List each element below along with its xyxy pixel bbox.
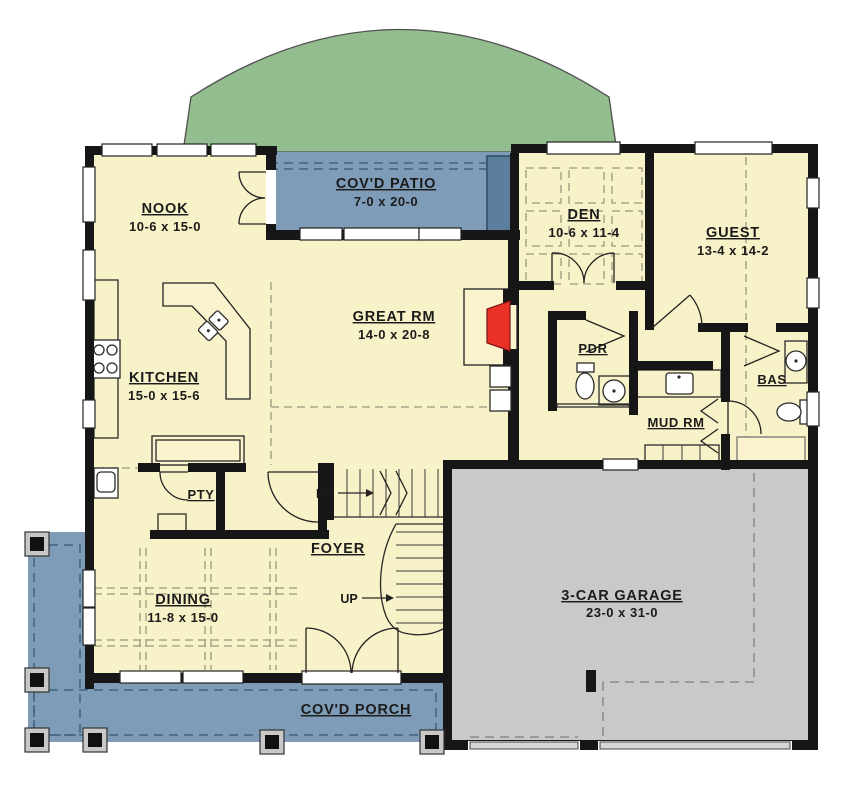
- pdr-toilet-icon: [576, 363, 594, 399]
- room-dims-patio: 7-0 x 20-0: [354, 194, 418, 209]
- floor-plan-page: NOOK 10-6 x 15-0 COV'D PATIO 7-0 x 20-0 …: [0, 0, 850, 785]
- room-label-bath: BAS: [757, 372, 786, 387]
- room-label-porch: COV'D PORCH: [301, 702, 412, 718]
- room-label-garage: 3-CAR GARAGE: [561, 588, 683, 604]
- room-label-kitchen: KITCHEN: [129, 370, 199, 386]
- room-label-great: GREAT RM: [353, 309, 436, 325]
- room-dims-guest: 13-4 x 14-2: [697, 243, 769, 258]
- backyard-lawn-shape: [183, 30, 617, 153]
- room-label-pdr: PDR: [578, 341, 607, 356]
- room-label-mud: MUD RM: [647, 415, 704, 430]
- buffet-cabinet: [152, 436, 244, 465]
- stair-label-down: DN: [316, 487, 334, 501]
- room-dims-dining: 11-8 x 15-0: [147, 610, 218, 625]
- floor-plan-image: NOOK 10-6 x 15-0 COV'D PATIO 7-0 x 20-0 …: [0, 0, 850, 785]
- room-dims-nook: 10-6 x 15-0: [129, 219, 201, 234]
- stair-label-up: UP: [340, 592, 357, 606]
- room-label-foyer: FOYER: [311, 541, 365, 557]
- room-label-dining: DINING: [155, 592, 211, 608]
- patio-grill-counter: [487, 156, 513, 235]
- dining-bar-sink-icon: [94, 468, 118, 498]
- room-label-nook: NOOK: [142, 201, 189, 217]
- room-label-patio: COV'D PATIO: [336, 176, 436, 192]
- room-dims-great: 14-0 x 20-8: [358, 327, 430, 342]
- room-dims-kitchen: 15-0 x 15-6: [128, 388, 200, 403]
- room-label-pantry: PTY: [187, 487, 214, 502]
- garage-post: [586, 670, 596, 692]
- room-dims-garage: 23-0 x 31-0: [586, 605, 658, 620]
- room-label-guest: GUEST: [706, 225, 760, 241]
- room-dims-den: 10-6 x 11-4: [548, 225, 620, 240]
- room-label-den: DEN: [567, 207, 600, 223]
- range-icon: [90, 340, 120, 378]
